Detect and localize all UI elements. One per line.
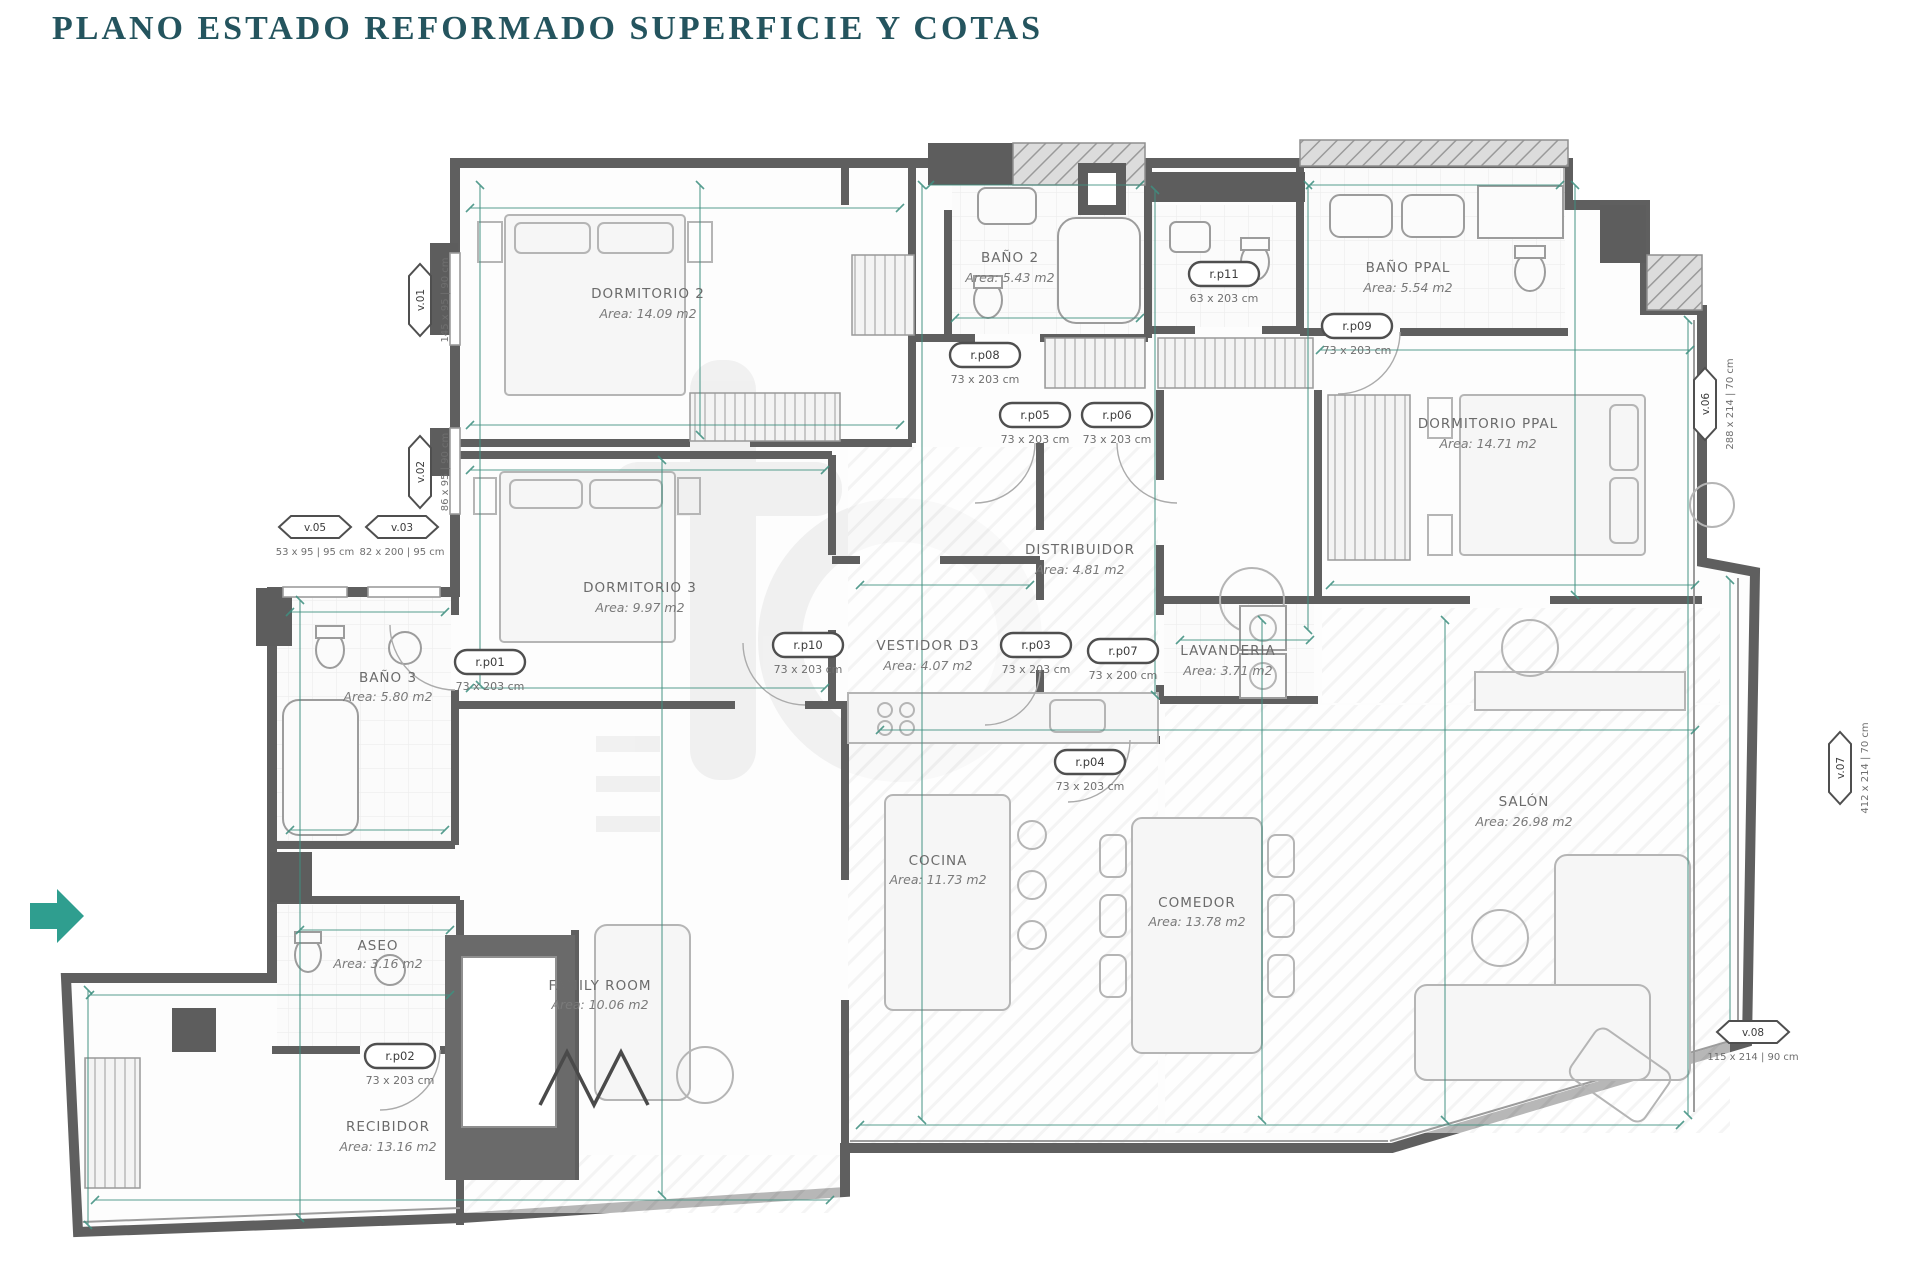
svg-text:Area: 14.09 m2: Area: 14.09 m2 (598, 306, 696, 321)
svg-text:Area: 9.97 m2: Area: 9.97 m2 (594, 600, 684, 615)
svg-text:Area: 5.80 m2: Area: 5.80 m2 (342, 689, 432, 704)
svg-text:v.08: v.08 (1742, 1027, 1764, 1039)
door-tag-rp02: r.p02 73 x 203 cm (365, 1044, 435, 1087)
svg-text:COMEDOR: COMEDOR (1158, 895, 1236, 911)
svg-text:v.03: v.03 (391, 522, 413, 534)
svg-text:Area: 5.43 m2: Area: 5.43 m2 (964, 270, 1054, 285)
svg-text:BAÑO PPAL: BAÑO PPAL (1366, 259, 1451, 276)
svg-text:r.p07: r.p07 (1108, 644, 1137, 658)
svg-text:v.02: v.02 (415, 461, 427, 483)
svg-text:Area: 5.54 m2: Area: 5.54 m2 (1362, 280, 1452, 295)
window-tag-v03: v.03 82 x 200 | 95 cm (360, 516, 445, 558)
svg-text:288 x 214 | 70 cm: 288 x 214 | 70 cm (1725, 358, 1736, 449)
svg-text:LAVANDERIA: LAVANDERIA (1180, 643, 1275, 659)
svg-text:412 x 214 | 70 cm: 412 x 214 | 70 cm (1860, 722, 1871, 813)
svg-text:r.p05: r.p05 (1020, 408, 1049, 422)
svg-text:FAMILY ROOM: FAMILY ROOM (549, 978, 652, 994)
svg-text:r.p02: r.p02 (385, 1049, 414, 1063)
svg-text:BAÑO 2: BAÑO 2 (981, 249, 1039, 266)
svg-text:Area: 14.71 m2: Area: 14.71 m2 (1438, 436, 1536, 451)
svg-text:Area: 4.81 m2: Area: 4.81 m2 (1034, 562, 1124, 577)
svg-text:Area: 3.16 m2: Area: 3.16 m2 (332, 956, 422, 971)
svg-text:r.p10: r.p10 (793, 638, 822, 652)
svg-text:ASEO: ASEO (358, 938, 399, 954)
svg-text:DORMITORIO 2: DORMITORIO 2 (591, 286, 705, 302)
door-tag-rp11: r.p11 63 x 203 cm (1189, 262, 1259, 305)
door-tag-rp03: r.p03 73 x 203 cm (1001, 633, 1071, 676)
svg-text:63 x 203 cm: 63 x 203 cm (1190, 292, 1259, 305)
svg-text:73 x 200 cm: 73 x 200 cm (1089, 669, 1158, 682)
svg-text:DORMITORIO 3: DORMITORIO 3 (583, 580, 697, 596)
door-tag-rp05: r.p05 73 x 203 cm (1000, 403, 1070, 446)
svg-text:73 x 203 cm: 73 x 203 cm (951, 373, 1020, 386)
svg-text:73 x 203 cm: 73 x 203 cm (1001, 433, 1070, 446)
floor-plan: DORMITORIO 2 Area: 14.09 m2 BAÑO 2 Area:… (0, 0, 1920, 1280)
door-tag-rp04: r.p04 73 x 203 cm (1055, 750, 1125, 793)
svg-text:86 x 95 | 90 cm: 86 x 95 | 90 cm (440, 433, 451, 512)
window-tag-v06: v.06 288 x 214 | 70 cm (1694, 358, 1736, 449)
svg-text:53 x 95 | 95 cm: 53 x 95 | 95 cm (276, 547, 355, 558)
svg-text:v.05: v.05 (304, 522, 326, 534)
door-tag-rp07: r.p07 73 x 200 cm (1088, 639, 1158, 682)
svg-text:73 x 203 cm: 73 x 203 cm (774, 663, 843, 676)
svg-text:73 x 203 cm: 73 x 203 cm (366, 1074, 435, 1087)
svg-text:Area: 13.16 m2: Area: 13.16 m2 (338, 1139, 436, 1154)
svg-text:r.p04: r.p04 (1075, 755, 1104, 769)
svg-text:DORMITORIO PPAL: DORMITORIO PPAL (1418, 416, 1558, 432)
window-tag-v05: v.05 53 x 95 | 95 cm (276, 516, 355, 558)
svg-text:Area: 26.98 m2: Area: 26.98 m2 (1474, 814, 1572, 829)
svg-text:v.07: v.07 (1835, 757, 1847, 779)
door-tag-rp06: r.p06 73 x 203 cm (1082, 403, 1152, 446)
svg-text:Area: 4.07 m2: Area: 4.07 m2 (882, 658, 972, 673)
svg-text:v.01: v.01 (415, 289, 427, 311)
svg-text:SALÓN: SALÓN (1499, 792, 1550, 810)
svg-text:r.p09: r.p09 (1342, 319, 1371, 333)
svg-text:145 x 95 | 90 cm: 145 x 95 | 90 cm (440, 258, 451, 343)
svg-text:RECIBIDOR: RECIBIDOR (346, 1119, 430, 1135)
door-tag-rp09: r.p09 73 x 203 cm (1322, 314, 1392, 357)
svg-text:82 x 200 | 95 cm: 82 x 200 | 95 cm (360, 547, 445, 558)
svg-text:VESTIDOR D3: VESTIDOR D3 (876, 638, 979, 654)
svg-text:v.06: v.06 (1700, 393, 1712, 415)
svg-text:r.p08: r.p08 (970, 348, 999, 362)
page: PLANO ESTADO REFORMADO SUPERFICIE Y COTA… (0, 0, 1920, 1280)
svg-text:BAÑO 3: BAÑO 3 (359, 669, 417, 686)
svg-text:r.p03: r.p03 (1021, 638, 1050, 652)
svg-text:r.p01: r.p01 (475, 655, 504, 669)
svg-text:COCINA: COCINA (909, 853, 968, 869)
door-tag-rp01: r.p01 73 x 203 cm (455, 650, 525, 693)
svg-text:r.p06: r.p06 (1102, 408, 1131, 422)
door-tag-rp10: r.p10 73 x 203 cm (773, 633, 843, 676)
svg-text:73 x 203 cm: 73 x 203 cm (456, 680, 525, 693)
svg-text:115 x 214 | 90 cm: 115 x 214 | 90 cm (1707, 1052, 1798, 1063)
svg-text:Area: 11.73 m2: Area: 11.73 m2 (888, 872, 986, 887)
door-tag-rp08: r.p08 73 x 203 cm (950, 343, 1020, 386)
svg-text:73 x 203 cm: 73 x 203 cm (1323, 344, 1392, 357)
svg-text:r.p11: r.p11 (1209, 267, 1238, 281)
entry-arrow-icon (30, 889, 84, 943)
svg-text:DISTRIBUIDOR: DISTRIBUIDOR (1025, 542, 1135, 558)
svg-text:73 x 203 cm: 73 x 203 cm (1002, 663, 1071, 676)
svg-text:73 x 203 cm: 73 x 203 cm (1056, 780, 1125, 793)
svg-text:73 x 203 cm: 73 x 203 cm (1083, 433, 1152, 446)
window-tag-v07: v.07 412 x 214 | 70 cm (1829, 722, 1871, 813)
svg-text:Area: 3.71 m2: Area: 3.71 m2 (1182, 663, 1272, 678)
svg-text:Area: 10.06 m2: Area: 10.06 m2 (550, 997, 648, 1012)
svg-text:Area: 13.78 m2: Area: 13.78 m2 (1147, 914, 1245, 929)
